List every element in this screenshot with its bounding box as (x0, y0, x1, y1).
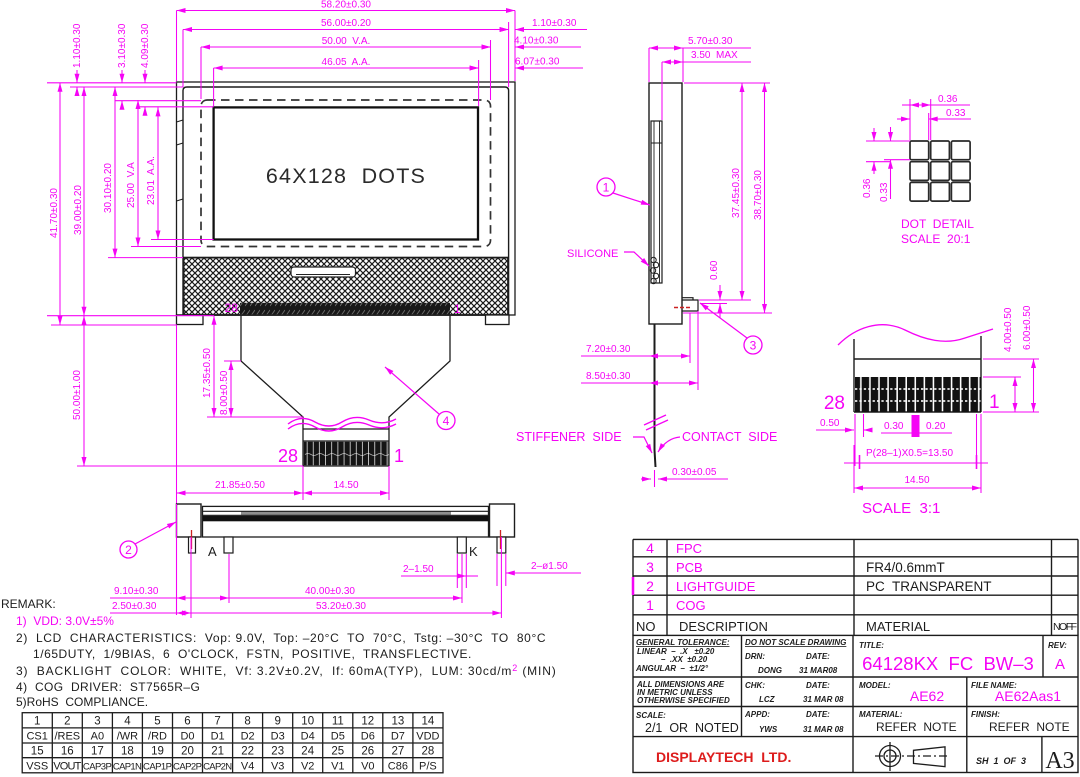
svg-text:0.30±0.05: 0.30±0.05 (672, 467, 717, 478)
svg-text:D7: D7 (391, 731, 405, 743)
svg-text:DESCRIPTION: DESCRIPTION (679, 619, 768, 634)
svg-text:CAP2P: CAP2P (173, 762, 202, 773)
svg-text:16: 16 (61, 746, 74, 758)
svg-text:15: 15 (31, 746, 44, 758)
svg-text:28: 28 (824, 393, 845, 414)
svg-text:P(28–1)X0.5=13.50: P(28–1)X0.5=13.50 (866, 448, 953, 459)
svg-text:0.36: 0.36 (862, 178, 873, 198)
svg-text:1: 1 (34, 716, 40, 728)
svg-text:40.00±0.30: 40.00±0.30 (305, 586, 355, 597)
svg-text:DO NOT SCALE DRAWING: DO NOT SCALE DRAWING (745, 638, 846, 647)
svg-text:17: 17 (91, 746, 104, 758)
svg-text:8.00±0.50: 8.00±0.50 (219, 370, 230, 415)
svg-text:4.09±0.30: 4.09±0.30 (140, 23, 151, 68)
svg-text:24: 24 (301, 746, 314, 758)
svg-text:31 MAR08: 31 MAR08 (799, 666, 838, 675)
svg-text:4.10±0.30: 4.10±0.30 (514, 36, 559, 47)
svg-text:3.10±0.30: 3.10±0.30 (117, 23, 128, 68)
svg-text:V4: V4 (241, 761, 254, 773)
svg-text:FINISH:: FINISH: (971, 710, 1000, 719)
svg-text:1: 1 (394, 446, 404, 466)
svg-text:39.00±0.20: 39.00±0.20 (73, 185, 84, 235)
svg-text:18: 18 (121, 746, 134, 758)
svg-text:14: 14 (422, 716, 435, 728)
svg-text:23.01 A.A.: 23.01 A.A. (146, 156, 157, 205)
svg-text:1: 1 (454, 302, 461, 316)
svg-text:0.60: 0.60 (709, 260, 720, 280)
svg-text:COG: COG (676, 598, 706, 613)
svg-text:28: 28 (422, 746, 435, 758)
svg-text:D2: D2 (241, 731, 255, 743)
svg-text:OTHERWISE SPECIFIED: OTHERWISE SPECIFIED (637, 696, 730, 705)
svg-text:TITLE:: TITLE: (859, 641, 884, 650)
svg-text:SCALE 20:1: SCALE 20:1 (901, 232, 971, 246)
svg-text:0.50: 0.50 (820, 418, 840, 429)
svg-text:CAP1N: CAP1N (113, 762, 142, 773)
svg-text:8.50±0.30: 8.50±0.30 (586, 371, 631, 382)
svg-text:REFER NOTE: REFER NOTE (989, 720, 1070, 734)
svg-text:27: 27 (392, 746, 405, 758)
svg-text:REV:: REV: (1048, 641, 1067, 650)
svg-text:D5: D5 (331, 731, 345, 743)
svg-text:2: 2 (646, 578, 654, 594)
svg-text:22: 22 (241, 746, 254, 758)
svg-text:V0: V0 (361, 761, 374, 773)
svg-text:1) VDD: 3.0V±5%: 1) VDD: 3.0V±5% (16, 614, 114, 628)
svg-text:LIGHTGUIDE: LIGHTGUIDE (676, 579, 756, 594)
svg-text:38.70±0.30: 38.70±0.30 (753, 170, 764, 220)
svg-text:0.20: 0.20 (926, 421, 946, 432)
svg-text:DISPLAYTECH LTD.: DISPLAYTECH LTD. (656, 749, 791, 765)
svg-text:FPC: FPC (676, 541, 702, 556)
svg-text:1: 1 (603, 181, 610, 195)
svg-text:/RES: /RES (54, 731, 80, 743)
svg-text:CONTACT SIDE: CONTACT SIDE (682, 430, 777, 444)
svg-text:5)RoHS COMPLIANCE.: 5)RoHS COMPLIANCE. (16, 695, 148, 709)
svg-text:FR4/0.6mmT: FR4/0.6mmT (866, 560, 945, 575)
svg-text:1: 1 (989, 392, 1000, 413)
svg-text:0.30: 0.30 (884, 421, 904, 432)
svg-text:17.35±0.50: 17.35±0.50 (202, 348, 213, 398)
svg-text:LCZ: LCZ (759, 695, 776, 704)
svg-text:41.70±0.30: 41.70±0.30 (49, 188, 60, 238)
svg-text:28: 28 (278, 446, 298, 466)
svg-text:50.00 V.A.: 50.00 V.A. (322, 36, 371, 47)
svg-text:DOT DETAIL: DOT DETAIL (901, 217, 974, 231)
svg-text:11: 11 (332, 716, 344, 728)
svg-text:AE62: AE62 (910, 688, 944, 704)
svg-text:C86: C86 (388, 761, 408, 773)
svg-text:46.05 A.A.: 46.05 A.A. (322, 57, 371, 68)
svg-text:4) COG DRIVER: ST7565R–G: 4) COG DRIVER: ST7565R–G (16, 680, 200, 694)
svg-text:7.20±0.30: 7.20±0.30 (586, 344, 631, 355)
svg-text:14.50: 14.50 (904, 475, 929, 486)
svg-text:SH 1 OF 3: SH 1 OF 3 (976, 756, 1026, 766)
svg-text:V1: V1 (331, 761, 344, 773)
svg-text:50.00±1.00: 50.00±1.00 (72, 370, 83, 420)
svg-text:6.07±0.30: 6.07±0.30 (515, 57, 560, 68)
svg-text:SCALE:: SCALE: (636, 711, 666, 720)
svg-text:2–ø1.50: 2–ø1.50 (531, 561, 568, 572)
svg-text:4: 4 (124, 716, 131, 728)
svg-text:4.00±0.50: 4.00±0.50 (1003, 307, 1014, 352)
svg-text:28: 28 (225, 301, 239, 315)
svg-text:V3: V3 (271, 761, 284, 773)
svg-text:VDD: VDD (416, 731, 439, 743)
svg-text:MODEL:: MODEL: (859, 681, 891, 690)
svg-text:10: 10 (301, 716, 314, 728)
svg-text:0.36: 0.36 (938, 94, 958, 105)
svg-text:7: 7 (214, 716, 220, 728)
svg-text:D0: D0 (180, 731, 194, 743)
svg-text:58.20±0.30: 58.20±0.30 (321, 0, 371, 11)
svg-text:NOFF: NOFF (1053, 621, 1077, 633)
svg-text:DATE:: DATE: (806, 710, 830, 719)
svg-text:VSS: VSS (26, 761, 48, 773)
svg-text:21.85±0.50: 21.85±0.50 (215, 480, 265, 491)
svg-text:SILICONE: SILICONE (567, 248, 618, 260)
svg-text:CS1: CS1 (26, 731, 47, 743)
svg-text:6: 6 (184, 716, 190, 728)
svg-text:REMARK:: REMARK: (1, 597, 56, 611)
svg-text:21: 21 (211, 746, 224, 758)
svg-text:GENERAL TOLERANCE:: GENERAL TOLERANCE: (636, 638, 730, 647)
svg-text:MATERIAL: MATERIAL (866, 619, 930, 634)
svg-text:25.00 V.A: 25.00 V.A (126, 162, 137, 208)
svg-text:1/65DUTY, 1/9BIAS, 6 O'CLOC: 1/65DUTY, 1/9BIAS, 6 O'CLOCK, FSTN, POSI… (33, 647, 472, 661)
svg-text:37.45±0.30: 37.45±0.30 (731, 168, 742, 218)
svg-text:2: 2 (64, 716, 70, 728)
svg-text:64128KX FC BW–3: 64128KX FC BW–3 (862, 653, 1034, 674)
svg-text:V2: V2 (301, 761, 314, 773)
svg-text:1: 1 (646, 597, 654, 613)
svg-text:D3: D3 (271, 731, 285, 743)
svg-text:2: 2 (125, 543, 132, 557)
svg-text:2) LCD CHARACTERISTICS: Vop: 2) LCD CHARACTERISTICS: Vop: 9.0V, Top: … (16, 631, 546, 645)
svg-text:PC TRANSPARENT: PC TRANSPARENT (866, 579, 992, 594)
svg-text:30.10±0.20: 30.10±0.20 (103, 163, 114, 213)
svg-text:REFER NOTE: REFER NOTE (876, 720, 957, 734)
svg-text:1.10±0.30: 1.10±0.30 (532, 18, 577, 29)
svg-text:9: 9 (274, 716, 280, 728)
svg-text:3: 3 (94, 716, 100, 728)
svg-text:A: A (208, 544, 217, 559)
svg-text:20: 20 (181, 746, 194, 758)
svg-text:PCB: PCB (676, 560, 703, 575)
svg-text:MATERIAL:: MATERIAL: (859, 710, 903, 719)
svg-text:2–1.50: 2–1.50 (403, 564, 434, 575)
svg-text:D6: D6 (361, 731, 375, 743)
svg-text:A0: A0 (91, 731, 104, 743)
svg-text:SCALE 3:1: SCALE 3:1 (862, 500, 940, 517)
svg-text:19: 19 (151, 746, 164, 758)
svg-text:DATE:: DATE: (806, 681, 830, 690)
svg-text:5.70±0.30: 5.70±0.30 (688, 36, 733, 47)
svg-text:CHK:: CHK: (745, 681, 765, 690)
svg-text:/WR: /WR (117, 731, 138, 743)
svg-text:53.20±0.30: 53.20±0.30 (316, 601, 366, 612)
svg-text:APPD:: APPD: (744, 710, 770, 719)
svg-text:4: 4 (443, 414, 450, 428)
svg-text:ANGULAR – ±1/2°: ANGULAR – ±1/2° (635, 664, 709, 673)
svg-text:/RD: /RD (148, 731, 167, 743)
svg-text:DONG: DONG (758, 666, 782, 675)
svg-text:2/1 OR NOTED: 2/1 OR NOTED (645, 721, 739, 735)
svg-text:VOUT: VOUT (53, 761, 81, 773)
svg-text:P/S: P/S (419, 761, 437, 773)
svg-text:3: 3 (646, 559, 654, 575)
svg-text:CAP2N: CAP2N (203, 762, 232, 773)
svg-text:4: 4 (646, 540, 654, 556)
svg-text:– .XX ±0.20: – .XX ±0.20 (661, 655, 708, 664)
svg-text:K: K (469, 544, 478, 559)
svg-text:STIFFENER SIDE: STIFFENER SIDE (516, 430, 622, 444)
svg-text:56.00±0.20: 56.00±0.20 (321, 18, 371, 29)
svg-text:2.50±0.30: 2.50±0.30 (112, 601, 157, 612)
svg-text:23: 23 (271, 746, 284, 758)
svg-text:14.50: 14.50 (333, 480, 358, 491)
svg-text:NO: NO (636, 619, 656, 634)
svg-text:31 MAR 08: 31 MAR 08 (803, 725, 844, 734)
svg-text:3) BACKLIGHT COLOR: WHITE,: 3) BACKLIGHT COLOR: WHITE, Vf: 3.2V±0.2V… (16, 663, 557, 678)
svg-text:AE62Aas1: AE62Aas1 (995, 688, 1061, 704)
svg-text:A3: A3 (1045, 748, 1074, 774)
svg-text:YWS: YWS (759, 725, 778, 734)
svg-text:3: 3 (750, 339, 757, 353)
svg-text:D4: D4 (301, 731, 315, 743)
svg-text:CAP3P: CAP3P (83, 762, 112, 773)
svg-text:0.33: 0.33 (946, 108, 966, 119)
svg-text:DATE:: DATE: (806, 652, 830, 661)
svg-text:3.50 MAX: 3.50 MAX (691, 50, 738, 61)
svg-text:D1: D1 (211, 731, 225, 743)
svg-text:13: 13 (392, 716, 405, 728)
svg-text:25: 25 (331, 746, 344, 758)
svg-text:64X128 DOTS: 64X128 DOTS (266, 164, 426, 188)
svg-text:26: 26 (361, 746, 374, 758)
svg-text:12: 12 (361, 716, 374, 728)
svg-text:A: A (1055, 656, 1065, 673)
svg-text:DRN:: DRN: (745, 652, 765, 661)
svg-text:1.10±0.30: 1.10±0.30 (72, 23, 83, 68)
svg-text:31 MAR 08: 31 MAR 08 (803, 695, 844, 704)
svg-text:CAP1P: CAP1P (143, 762, 172, 773)
svg-text:0.33: 0.33 (879, 182, 890, 202)
svg-text:6.00±0.50: 6.00±0.50 (1022, 305, 1033, 350)
svg-text:8: 8 (244, 716, 250, 728)
svg-text:5: 5 (154, 716, 160, 728)
svg-text:9.10±0.30: 9.10±0.30 (114, 586, 159, 597)
